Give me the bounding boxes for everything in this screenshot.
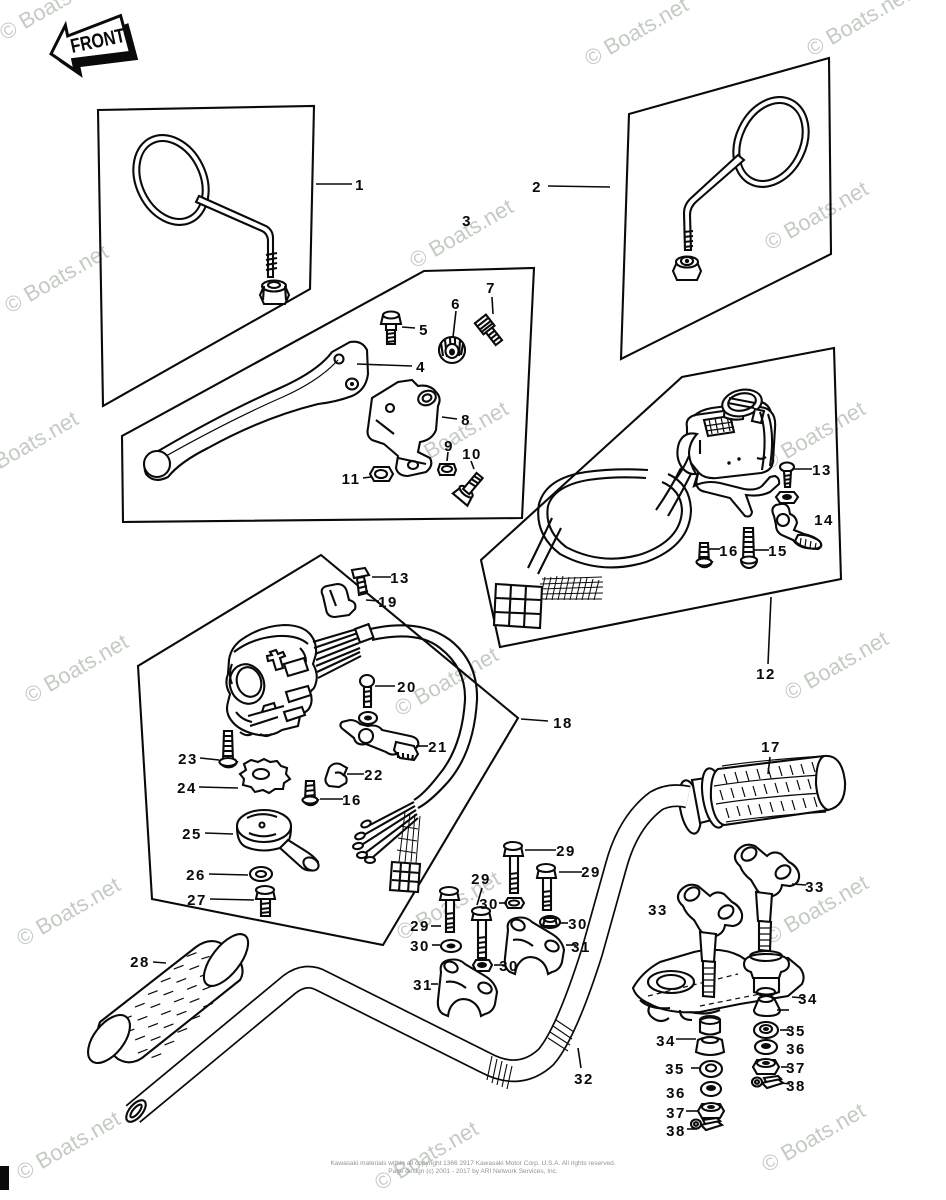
- svg-text:24: 24: [177, 780, 197, 797]
- svg-text:16: 16: [342, 792, 362, 809]
- svg-text:13: 13: [812, 462, 832, 479]
- svg-text:21: 21: [428, 739, 448, 756]
- svg-text:29: 29: [556, 843, 576, 860]
- svg-text:9: 9: [444, 438, 454, 455]
- svg-text:1: 1: [355, 177, 365, 194]
- svg-text:31: 31: [571, 939, 591, 956]
- svg-text:29: 29: [471, 871, 491, 888]
- svg-text:22: 22: [364, 767, 384, 784]
- svg-text:36: 36: [666, 1085, 686, 1102]
- svg-text:37: 37: [786, 1060, 806, 1077]
- svg-text:3: 3: [462, 213, 472, 230]
- svg-text:37: 37: [666, 1105, 686, 1122]
- svg-text:31: 31: [413, 977, 433, 994]
- svg-text:30: 30: [479, 896, 499, 913]
- svg-text:30: 30: [499, 958, 519, 975]
- svg-text:8: 8: [461, 412, 471, 429]
- svg-text:38: 38: [666, 1123, 686, 1140]
- svg-text:13: 13: [390, 570, 410, 587]
- svg-text:29: 29: [581, 864, 601, 881]
- svg-text:28: 28: [130, 954, 150, 971]
- svg-text:29: 29: [410, 918, 430, 935]
- svg-text:30: 30: [568, 916, 588, 933]
- svg-text:5: 5: [419, 322, 429, 339]
- svg-text:17: 17: [761, 739, 781, 756]
- svg-text:Kawasaki materials within all: Kawasaki materials within all copyright …: [330, 1160, 615, 1167]
- svg-text:16: 16: [719, 543, 739, 560]
- svg-text:34: 34: [656, 1033, 676, 1050]
- svg-text:12: 12: [756, 666, 776, 683]
- svg-text:2: 2: [532, 179, 542, 196]
- svg-text:20: 20: [397, 679, 417, 696]
- svg-text:36: 36: [786, 1041, 806, 1058]
- svg-text:10: 10: [462, 446, 482, 463]
- svg-text:19: 19: [378, 594, 398, 611]
- svg-text:23: 23: [178, 751, 198, 768]
- svg-text:18: 18: [553, 715, 573, 732]
- svg-text:38: 38: [786, 1078, 806, 1095]
- svg-text:26: 26: [186, 867, 206, 884]
- svg-text:Page design (c) 2001 - 2017 by: Page design (c) 2001 - 2017 by ARI Netwo…: [388, 1168, 558, 1175]
- svg-text:32: 32: [574, 1071, 594, 1088]
- svg-text:7: 7: [486, 280, 496, 297]
- svg-text:30: 30: [410, 938, 430, 955]
- svg-text:4: 4: [416, 359, 426, 376]
- svg-text:35: 35: [665, 1061, 685, 1078]
- svg-text:27: 27: [187, 892, 207, 909]
- svg-text:6: 6: [451, 296, 461, 313]
- svg-text:25: 25: [182, 826, 202, 843]
- svg-text:33: 33: [648, 902, 668, 919]
- svg-text:34: 34: [798, 991, 818, 1008]
- svg-text:35: 35: [786, 1023, 806, 1040]
- svg-text:14: 14: [814, 512, 834, 529]
- svg-text:15: 15: [768, 543, 788, 560]
- svg-text:33: 33: [805, 879, 825, 896]
- svg-text:11: 11: [342, 471, 361, 488]
